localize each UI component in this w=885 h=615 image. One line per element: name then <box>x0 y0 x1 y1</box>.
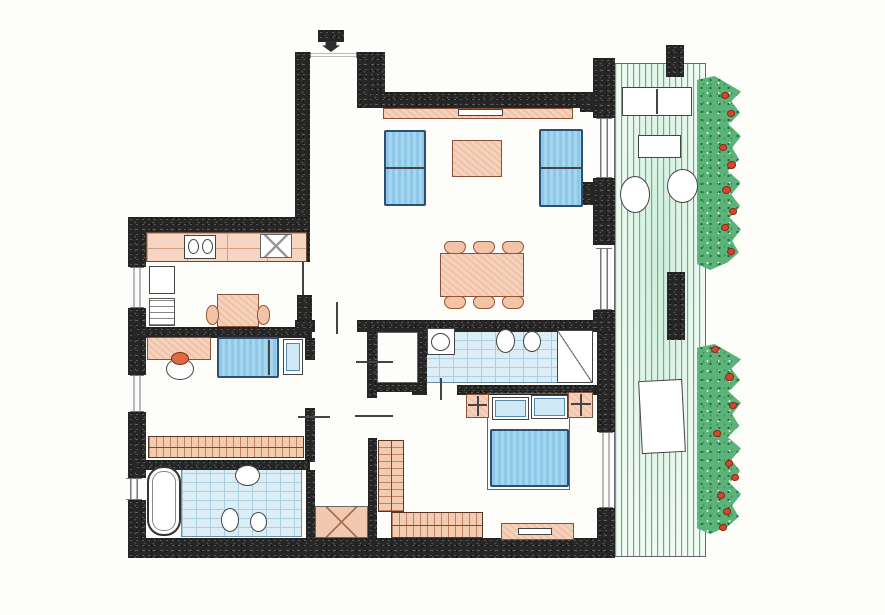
flower <box>722 186 731 194</box>
kitchen-appliance-stack <box>149 298 175 326</box>
flower <box>711 346 719 353</box>
hedge-lower <box>697 344 741 534</box>
wall-entry-left <box>295 52 310 230</box>
wall-terrace-pillar-mid <box>667 272 685 340</box>
flower <box>729 208 737 215</box>
dining-chair-1 <box>444 241 466 254</box>
wall-terrace-pillar-b <box>593 178 615 245</box>
kitchen-table <box>217 294 259 327</box>
hall-door-mark-2 <box>356 361 393 363</box>
dining-table <box>440 253 524 297</box>
bedroom1-window <box>130 375 144 412</box>
flower <box>729 402 737 409</box>
dining-chair-2 <box>473 241 495 254</box>
dining-chair-3 <box>502 241 524 254</box>
bathroom1-window <box>126 478 142 500</box>
flower <box>721 92 729 99</box>
wall-hall-left-upper <box>305 338 315 360</box>
floor-plan-canvas <box>0 0 885 615</box>
flower <box>727 110 735 117</box>
bedroom1-nightstand-inset <box>286 343 300 371</box>
kitchen-chair-right <box>257 305 270 325</box>
wall-hall-right-lower <box>368 438 377 538</box>
sofa-right-seam <box>541 167 581 169</box>
wall-bathroom1-right <box>306 470 315 538</box>
wall-left-1 <box>128 217 146 267</box>
bedroom2-lamp-right-v <box>580 394 582 416</box>
bathroom1-bidet <box>250 512 267 532</box>
hedge-upper <box>697 76 741 270</box>
wall-kitchen-top <box>128 217 310 232</box>
flower <box>719 524 727 531</box>
terrace-chair-2 <box>667 169 698 203</box>
bedroom2-pillow-right-inset <box>534 398 565 416</box>
entrance-arrow <box>322 41 340 52</box>
wall-right-lower-1 <box>597 332 615 432</box>
bedroom2-pillow-left-inset <box>495 400 526 417</box>
sideboard-inset <box>458 109 503 116</box>
bathroom2-shower <box>557 330 593 383</box>
hall-door-mark-4 <box>298 416 330 418</box>
bathroom2-door-leaf <box>440 378 442 400</box>
terrace-chair-1 <box>620 176 650 213</box>
bathroom1-sink <box>235 465 260 486</box>
bedroom1-bed-headboard <box>268 340 270 375</box>
hall-door-mark-3 <box>355 415 393 417</box>
kitchen-sink-basin-2 <box>202 239 213 254</box>
bedroom2-wardrobe-horizontal <box>391 512 483 538</box>
kitchen-chair-left <box>206 305 219 325</box>
bedroom1-desk-chair <box>171 352 189 365</box>
flower <box>727 248 735 255</box>
wall-bath2-bottom-left <box>412 383 427 395</box>
bedroom2-lamp-right-h <box>571 403 591 405</box>
wall-left-2 <box>128 308 146 375</box>
wall-bottom <box>128 538 615 558</box>
bathtub <box>147 466 181 536</box>
living-terrace-door-1 <box>596 118 612 178</box>
wall-living-top <box>368 92 595 108</box>
dining-chair-5 <box>473 296 495 309</box>
bedroom1-wardrobe <box>148 436 304 458</box>
kitchen-door-leaf <box>302 262 304 295</box>
flower <box>723 508 731 515</box>
bathroom2-bidet <box>523 331 541 352</box>
wall-terrace-pillar-c <box>593 310 615 332</box>
coffee-table <box>452 140 502 177</box>
living-terrace-door-2 <box>596 248 612 310</box>
sofa-left-seam <box>386 167 424 169</box>
bathroom1-toilet <box>221 508 239 532</box>
entrance-hatch-mark <box>318 30 344 42</box>
kitchen-hob <box>260 234 292 258</box>
flower <box>725 373 734 381</box>
flower <box>731 474 739 481</box>
flower <box>713 430 721 437</box>
kitchen-fridge <box>149 266 175 294</box>
bedroom2-wardrobe-vertical <box>378 440 404 512</box>
dining-chair-6 <box>502 296 524 309</box>
flower <box>719 144 727 151</box>
bedroom2-bench-inset <box>518 528 552 535</box>
closet-floor <box>377 332 418 383</box>
terrace-bench-divider <box>656 89 658 114</box>
hall-storage-x-area <box>315 506 368 538</box>
hall-door-mark-1 <box>336 302 338 334</box>
bedroom2-lamp-left-v <box>477 396 479 416</box>
wall-terrace-pillar-a-stub <box>580 92 593 112</box>
dining-chair-4 <box>444 296 466 309</box>
bedroom2-duvet <box>490 429 569 487</box>
terrace-table-lower <box>638 379 686 454</box>
wall-closet-right <box>418 325 427 387</box>
bathroom2-toilet <box>496 329 515 353</box>
bedroom2-window <box>599 432 613 508</box>
bathroom2-sink <box>431 333 450 351</box>
bedroom2-lamp-left-h <box>468 404 487 406</box>
kitchen-sink-basin-1 <box>188 239 199 254</box>
flower <box>725 460 733 467</box>
entrance-threshold <box>310 52 357 58</box>
kitchen-window <box>130 267 144 308</box>
flower <box>727 161 736 169</box>
terrace-table-upper <box>638 135 681 158</box>
wall-hall-top-left <box>295 320 315 332</box>
wall-terrace-pillar-top <box>666 45 684 77</box>
wall-terrace-pillar-a <box>593 58 615 118</box>
flower <box>721 224 729 231</box>
flower <box>717 492 725 499</box>
